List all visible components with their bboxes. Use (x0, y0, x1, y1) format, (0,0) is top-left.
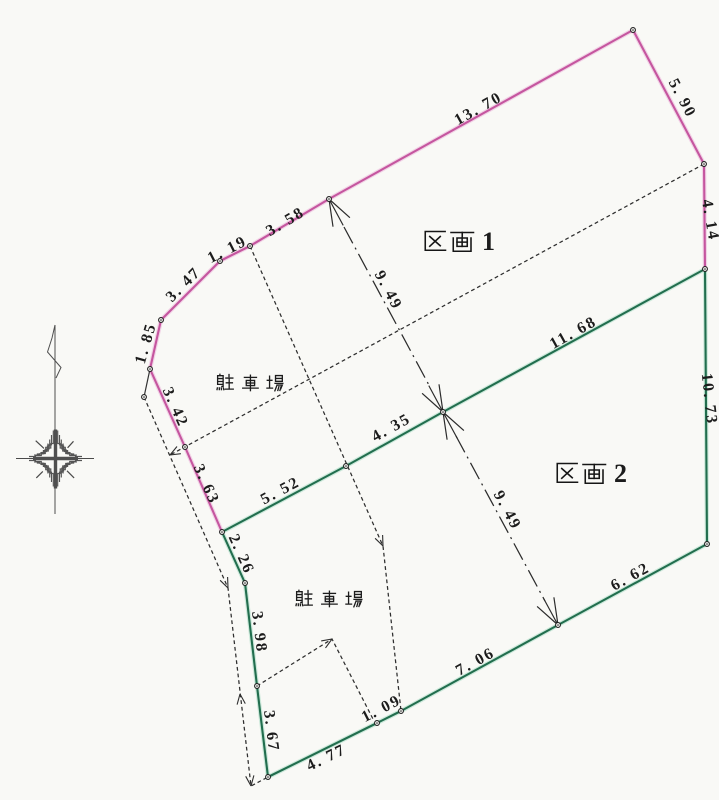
svg-text:2: 2 (614, 459, 627, 488)
svg-text:1: 1 (482, 227, 495, 256)
